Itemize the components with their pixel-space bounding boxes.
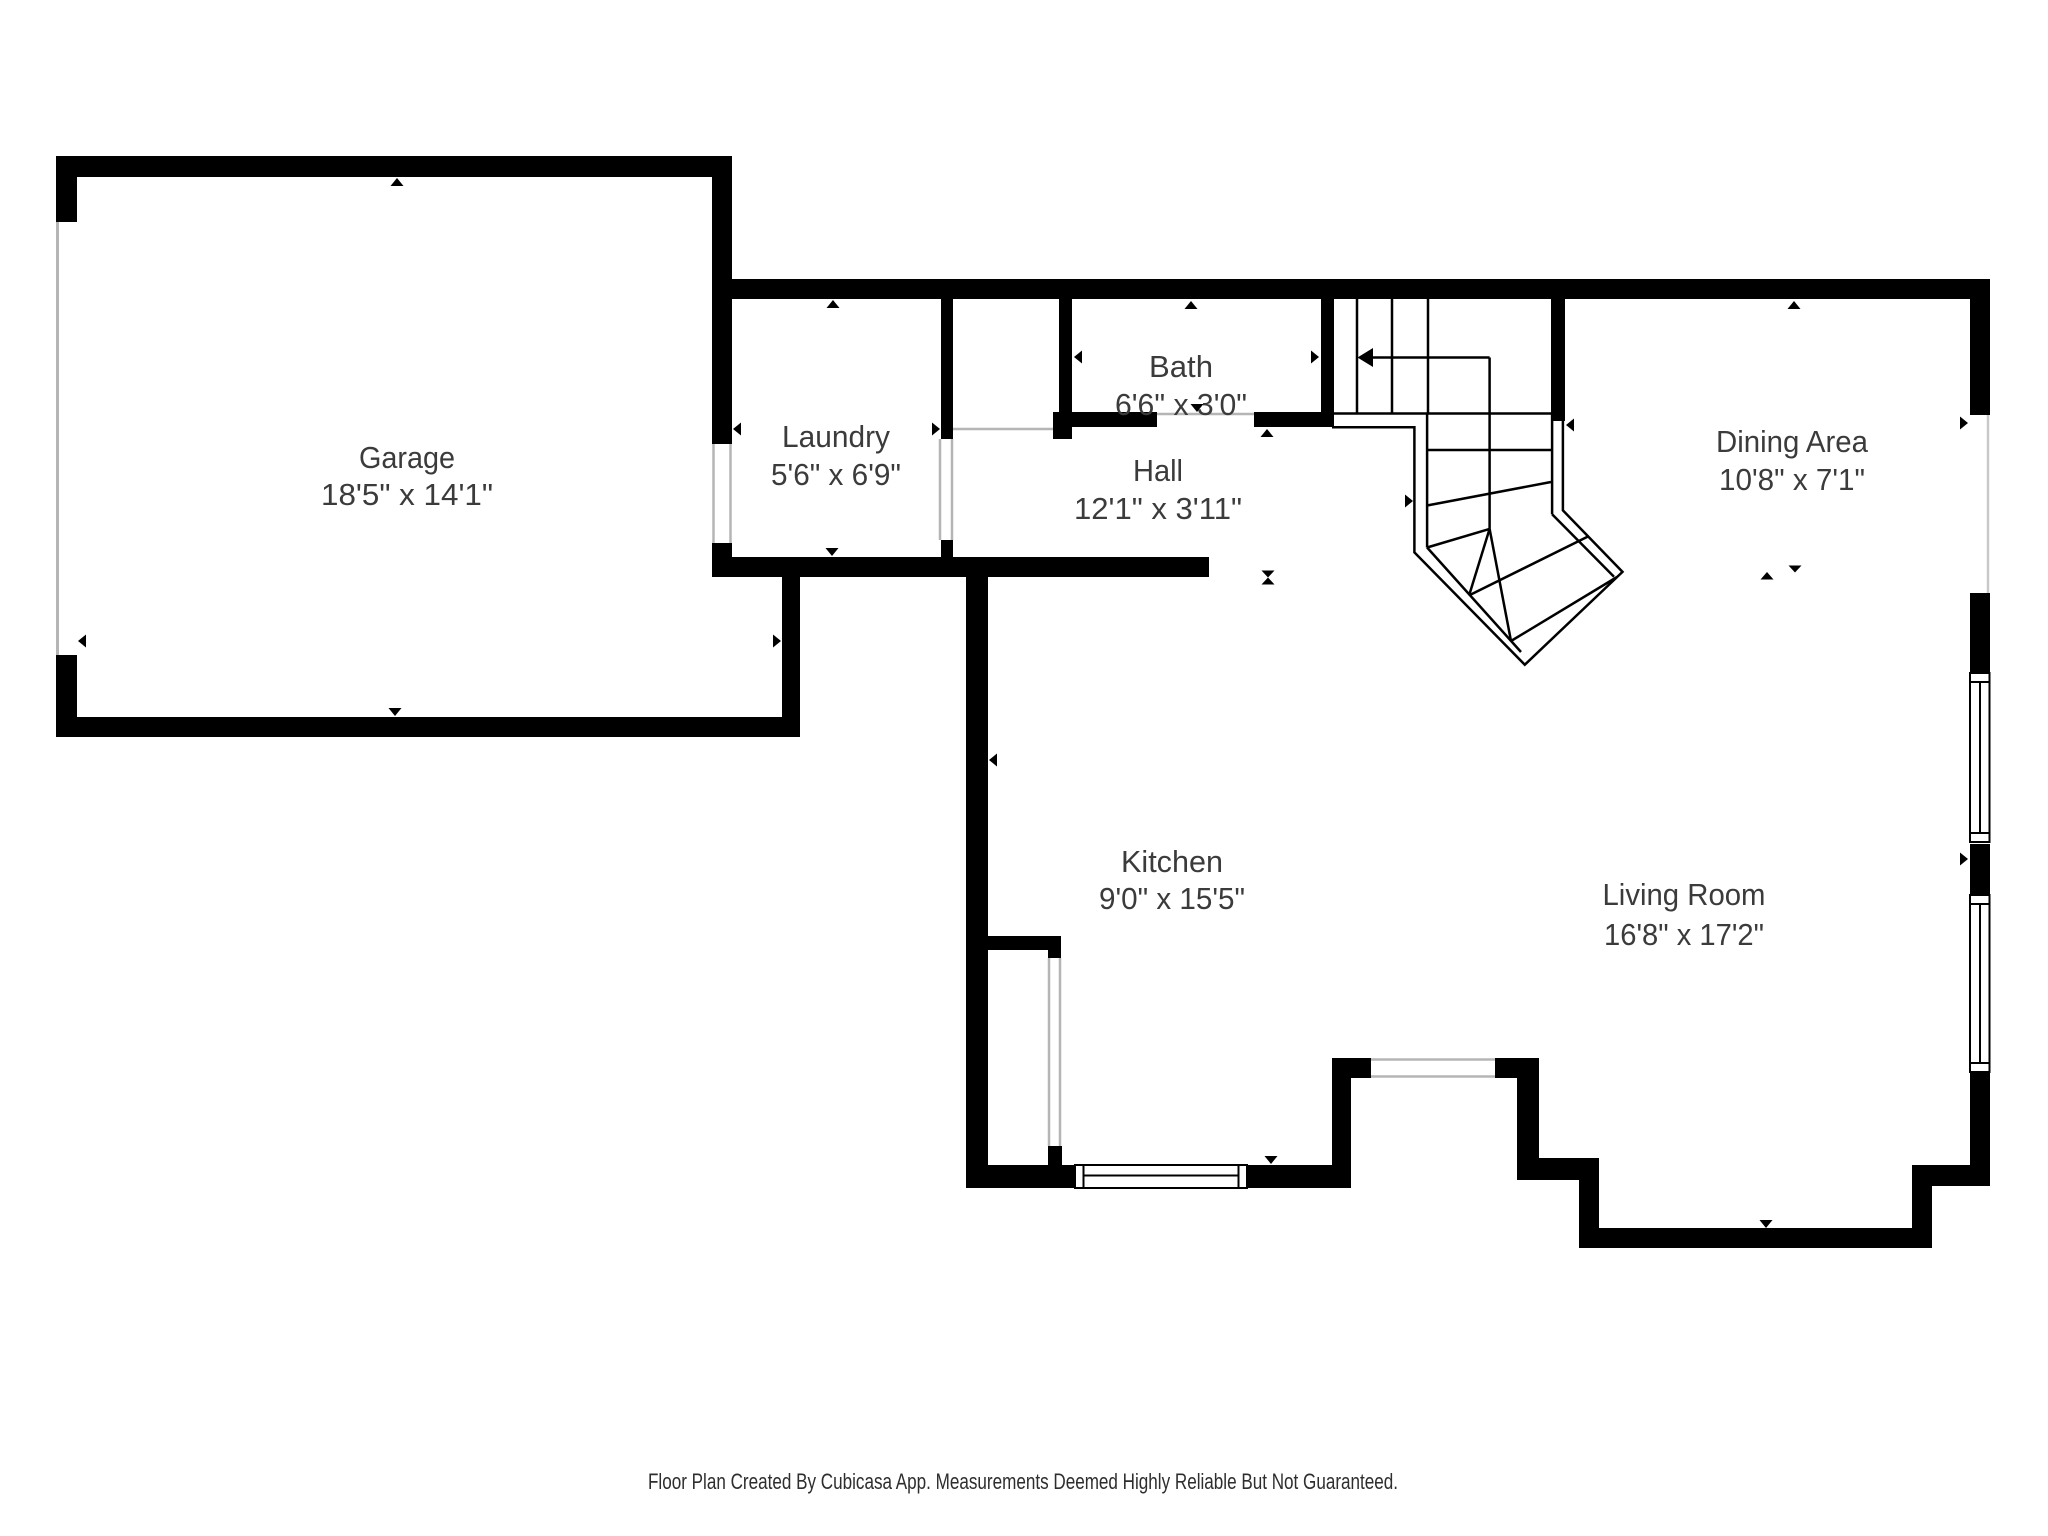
svg-text:Bath: Bath: [1149, 349, 1213, 384]
svg-text:12'1" x 3'11": 12'1" x 3'11": [1074, 491, 1242, 526]
svg-text:Living Room: Living Room: [1603, 877, 1766, 912]
svg-text:Laundry: Laundry: [782, 419, 890, 454]
svg-text:Floor Plan Created By Cubicasa: Floor Plan Created By Cubicasa App. Meas…: [648, 1469, 1398, 1494]
svg-text:10'8" x 7'1": 10'8" x 7'1": [1719, 462, 1865, 497]
svg-text:Garage: Garage: [359, 440, 455, 475]
svg-text:16'8" x 17'2": 16'8" x 17'2": [1604, 917, 1764, 952]
svg-text:5'6" x 6'9": 5'6" x 6'9": [771, 457, 901, 492]
svg-text:9'0" x 15'5": 9'0" x 15'5": [1099, 881, 1245, 916]
svg-text:Kitchen: Kitchen: [1121, 844, 1223, 879]
svg-text:Hall: Hall: [1133, 453, 1183, 488]
svg-text:6'6" x 3'0": 6'6" x 3'0": [1115, 387, 1247, 422]
svg-text:Dining Area: Dining Area: [1716, 424, 1869, 459]
svg-text:18'5" x 14'1": 18'5" x 14'1": [321, 477, 493, 512]
